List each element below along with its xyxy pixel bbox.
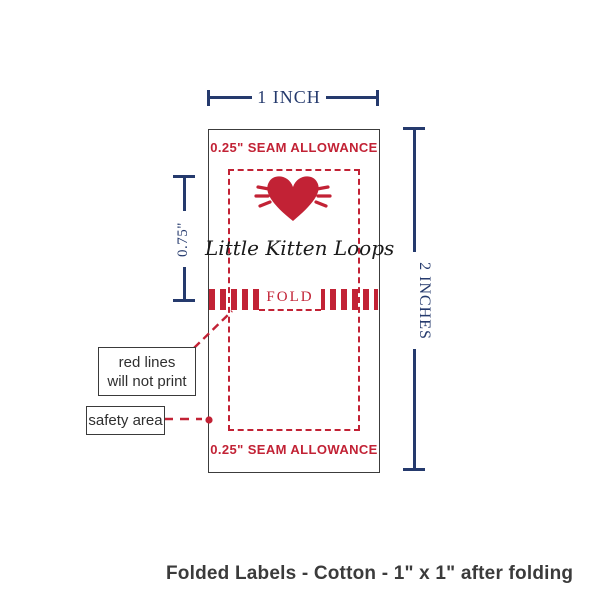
top-dimension-right-cap	[376, 90, 379, 106]
top-dimension-label: 1 INCH	[252, 78, 326, 117]
diagram-caption: Folded Labels - Cotton - 1" x 1" after f…	[166, 563, 573, 585]
right-dimension-bottom-cap	[403, 468, 425, 471]
seam-allowance-top-label: 0.25" SEAM ALLOWANCE	[208, 140, 380, 155]
callout-safety-area: safety area	[86, 406, 165, 435]
callout-red-lines-line2: will not print	[107, 372, 186, 391]
callout-safety-area-label: safety area	[88, 411, 162, 430]
right-dimension-label: 2 INCHES	[406, 252, 442, 349]
callout-red-lines: red lines will not print	[98, 347, 196, 396]
seam-allowance-bottom-label: 0.25" SEAM ALLOWANCE	[208, 442, 380, 457]
fold-label-box: FOLD	[259, 286, 321, 311]
brand-text: Little Kitten Loops	[205, 236, 383, 260]
heart-with-rays-icon	[251, 168, 335, 228]
left-dimension-label: 0.75"	[167, 211, 200, 267]
right-dimension-top-cap	[403, 127, 425, 130]
left-dimension-bottom-cap	[173, 299, 195, 302]
fold-label: FOLD	[266, 289, 313, 306]
folded-label-diagram: 0.25" SEAM ALLOWANCE 0.25" SEAM ALLOWANC…	[0, 0, 600, 600]
top-dimension-left-cap	[207, 90, 210, 106]
left-dimension-top-cap	[173, 175, 195, 178]
callout-red-lines-line1: red lines	[119, 353, 176, 372]
